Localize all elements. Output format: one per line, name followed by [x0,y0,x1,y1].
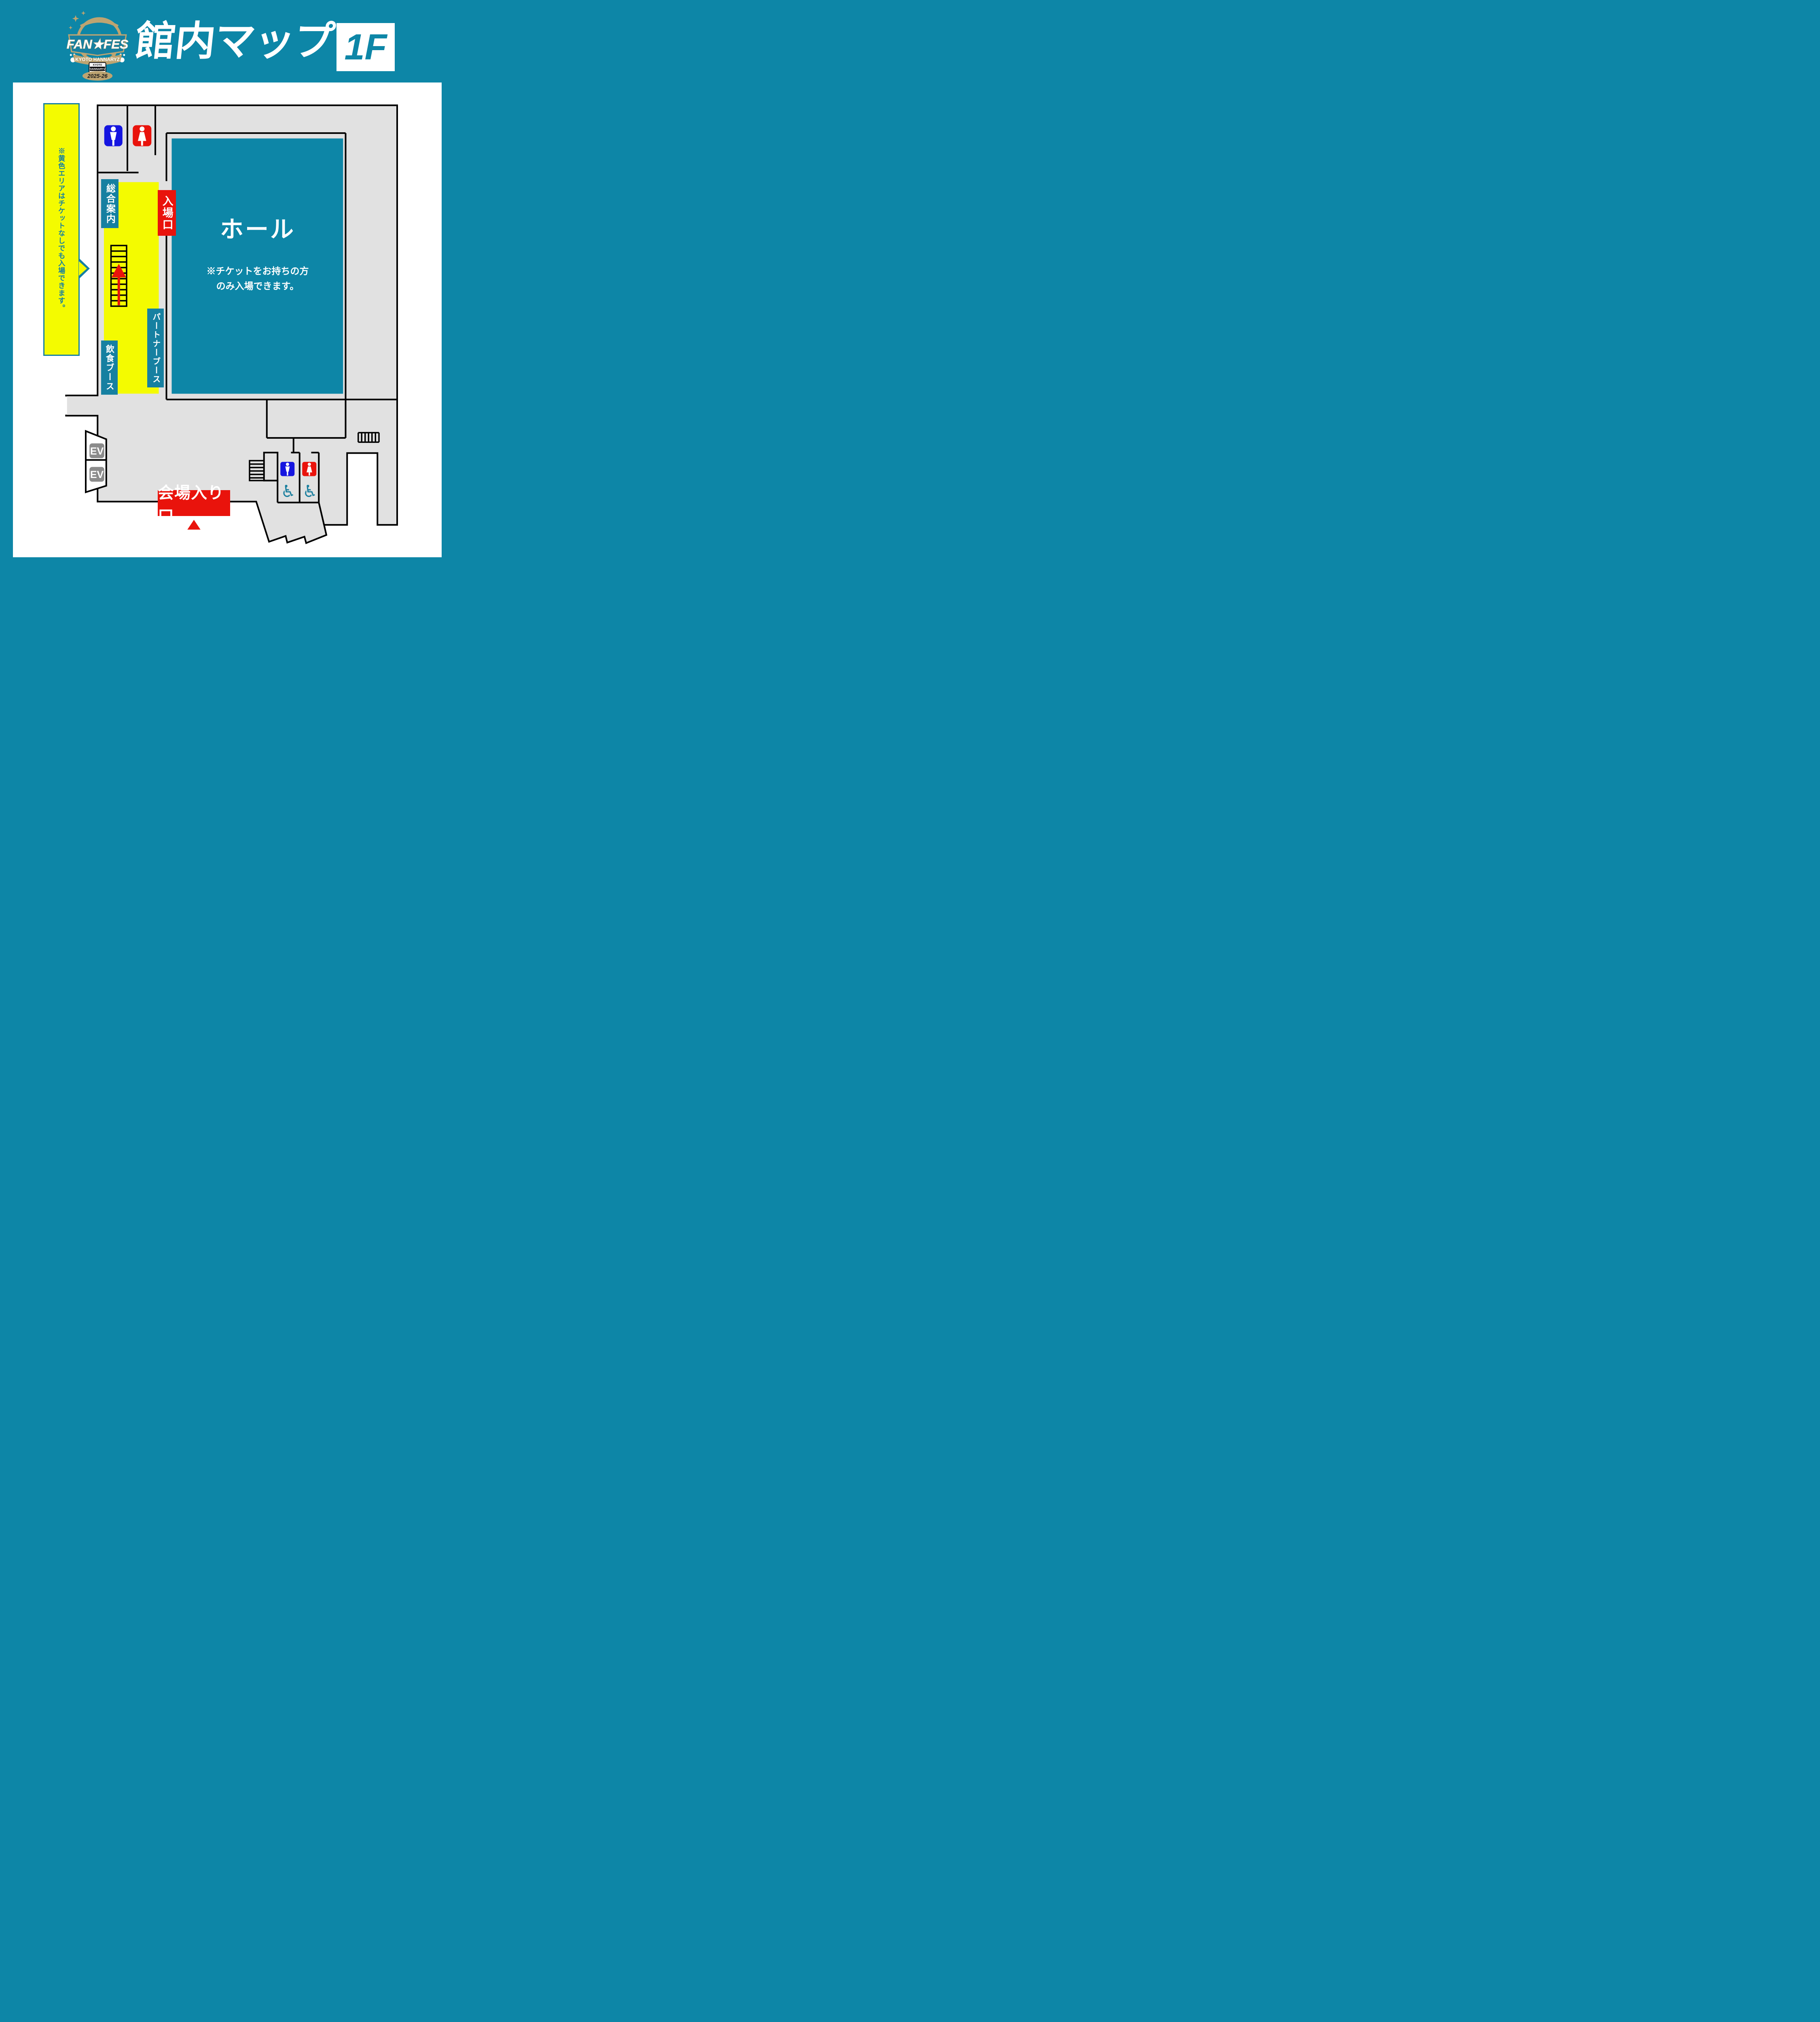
logo-banner: FAN★FES [67,35,129,55]
wheelchair-icon: ♿ [281,482,296,501]
info-desk-label: 総合案内 [101,179,119,228]
floor-badge: 1F [336,23,395,71]
hall-note-line1: ※チケットをお持ちの方 [168,264,347,279]
hall-label: ホール [172,210,343,244]
logo-team-text: KYOTO HANNARYZ [75,57,120,62]
page-title: 館内マップ [133,21,336,61]
hall-note-line2: のみ入場できます。 [168,279,347,294]
wheelchair-icon: ♿ [303,482,317,501]
logo-badge-kyoto: KYOTO [93,64,102,67]
logo-fanfes-text: FAN★FES [67,37,129,51]
partner-booth-label: パートナーブース [147,309,164,387]
hall-note: ※チケットをお持ちの方 のみ入場できます。 [168,264,347,294]
poster-page: FAN★FES KYOTO HANNARYZ KYOTO HANNARYZ 20… [0,0,455,569]
logo-season-text: 2025-26 [87,73,108,79]
food-booth-label: 飲食ブース [101,341,118,395]
svg-text:EV: EV [90,446,104,457]
stairs-icon [358,433,379,442]
elevator-icon: EV [89,467,104,482]
ticket-free-callout: ※黄色エリアはチケットなしでも入場できます。 [43,103,80,356]
logo-badge-hannaryz: HANNARYZ [89,67,106,71]
callout-tail [79,261,87,276]
svg-text:EV: EV [90,469,104,480]
venue-entrance-label: 会場入り口 [158,490,230,516]
fan-fes-logo: FAN★FES KYOTO HANNARYZ KYOTO HANNARYZ 20… [59,8,135,81]
elevator-icon: EV [89,443,104,458]
female-restroom-icon [302,462,316,476]
elevator-bay: EV EV [86,431,106,492]
left-opening-patch [65,396,67,415]
male-restroom-icon [104,125,123,146]
female-restroom-icon [133,125,151,146]
male-restroom-icon [280,462,294,476]
